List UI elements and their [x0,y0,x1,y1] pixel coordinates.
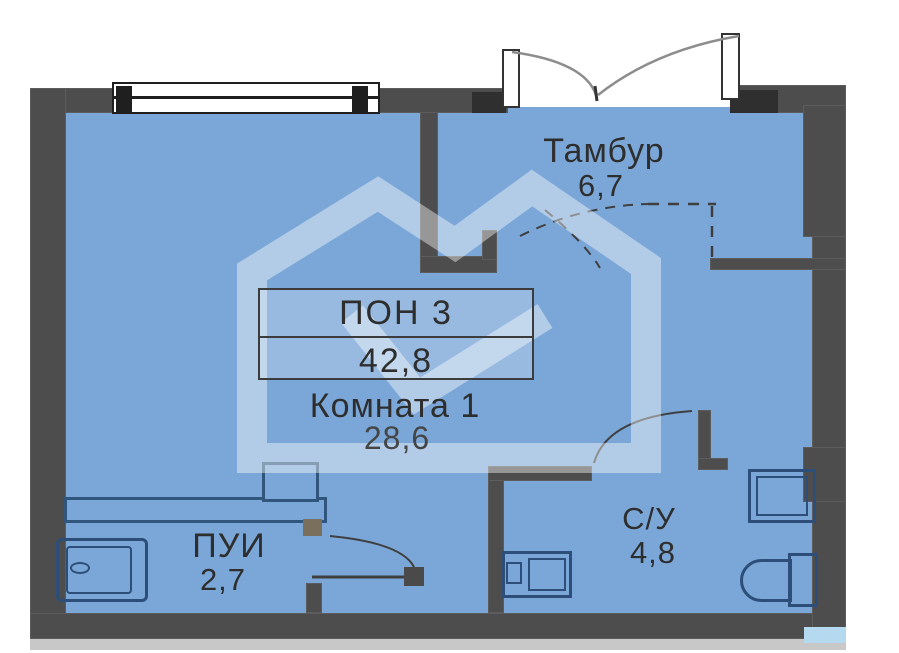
room-name-pui: ПУИ [192,529,265,563]
room-name-komnata: Комната 1 [310,389,480,423]
room-area-su: 4,8 [630,537,676,568]
room-area-komnata: 28,6 [364,422,430,454]
room-name-tambur: Тамбур [543,134,664,168]
unit-number: ПОН 3 [260,290,532,336]
floor-plan: ПОН 3 42,8 Тамбур 6,7 Комната 1 28,6 ПУИ… [0,0,899,653]
room-name-su: С/У [622,503,676,534]
room-area-tambur: 6,7 [578,170,624,201]
room-area-pui: 2,7 [200,564,246,595]
unit-label-box: ПОН 3 42,8 [258,288,534,380]
unit-total-area: 42,8 [260,336,532,382]
